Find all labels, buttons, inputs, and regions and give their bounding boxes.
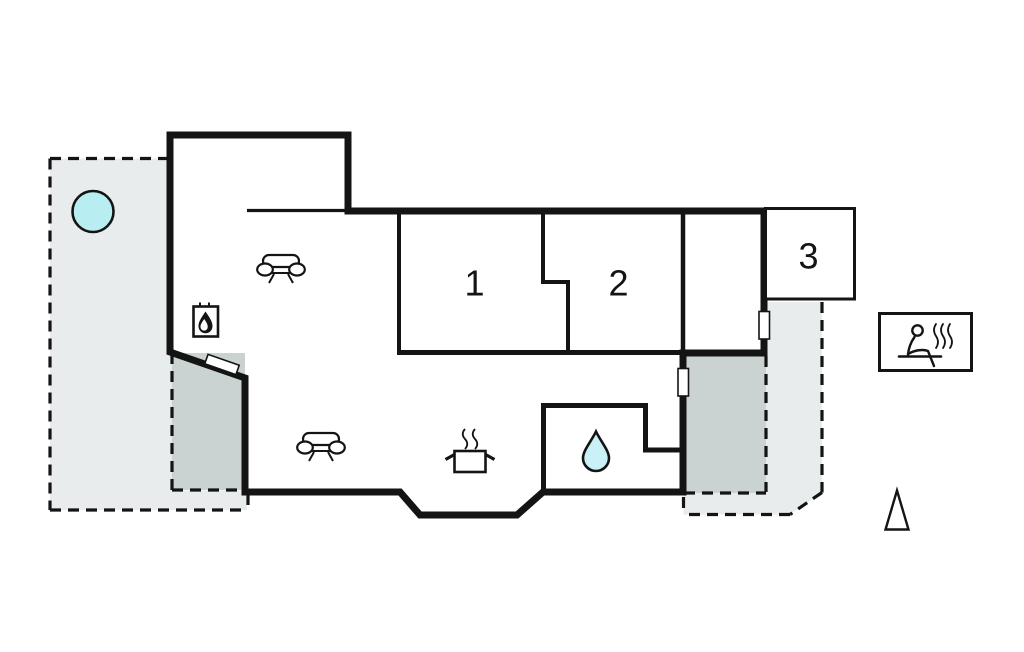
room-3-annex: 3	[766, 209, 855, 300]
floor-plan-canvas: 3 1 2	[0, 0, 1024, 652]
hot-tub-icon	[73, 191, 114, 232]
side-door-marker	[678, 369, 689, 397]
wood-stove-icon	[194, 303, 219, 337]
floor-plan: 3 1 2	[0, 0, 1024, 652]
room-2-label: 2	[608, 263, 628, 304]
room-1-label: 1	[464, 263, 484, 304]
sauna-legend	[880, 314, 972, 371]
sauna-box-outline	[880, 314, 972, 371]
right-covered-terrace-area	[684, 355, 766, 493]
room-3-label: 3	[798, 236, 818, 277]
hall-window-marker	[759, 312, 770, 340]
